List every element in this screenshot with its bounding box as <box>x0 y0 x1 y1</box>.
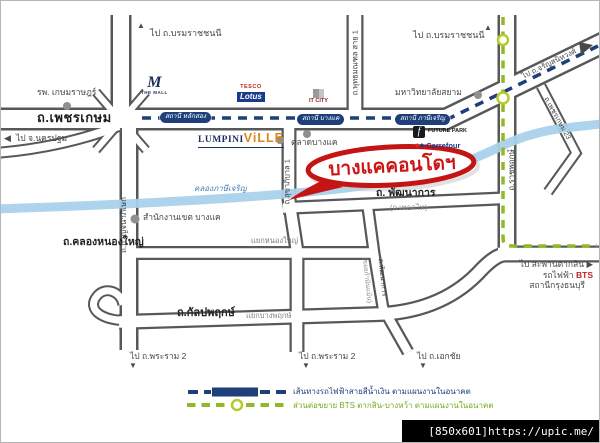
direction-borommaratchachonnani-right: ไป ถ.บรมราชชนนี <box>413 30 485 41</box>
bangkhae-area-map: ▲ ไป ถ.บรมราชชนนี ▲ ไป ถ.บรมราชชนนี ไป ถ… <box>0 0 600 443</box>
district-office-label: สำนักงานเขต บางแค <box>143 212 221 223</box>
up-arrow-icon: ▲ <box>484 24 492 32</box>
watermark: [850x601]https://upic.me/ <box>402 420 599 442</box>
road-label-kanchanaphisek: ถ.กาญจนาภิเษก <box>120 165 128 285</box>
bts-text: BTS <box>576 270 593 280</box>
it-city-logo: IT CITY <box>309 89 328 105</box>
direction-nakhon-pathom: ไป จ.นครปฐม <box>16 133 67 144</box>
road-label-phetkasem: ถ.เพชรเกษม <box>37 110 112 126</box>
building-icon <box>313 89 324 98</box>
direction-taksin-line1: ไป สะพานตากสิน ▶ <box>499 259 593 270</box>
bts-station-ring <box>498 35 508 45</box>
legend-graphics <box>187 388 288 411</box>
canal-label: คลองภาษีเจริญ <box>194 182 247 195</box>
future-park-icon: f <box>413 126 425 138</box>
up-arrow-icon: ▲ <box>137 22 145 30</box>
station-chip-bang-khae: สถานี บางแค <box>297 114 344 125</box>
legend-blue-line-text: เส้นทางรถไฟฟ้าสายสีน้ำเงิน ตามแผนงานในอน… <box>293 385 471 398</box>
road-label-khlong-nong-yai: ถ.คลองหนองใหญ่ <box>63 236 144 249</box>
siam-university-label: มหาวิทยาลัยสยาม <box>395 87 462 98</box>
bang-phruek-intersection-label: แยกบางพฤกษ์ <box>246 311 291 320</box>
kasemrad-hospital-label: รพ. เกษมราษฎร์ <box>37 87 96 98</box>
nong-yai-intersection-label: แยกหนองใหญ่ <box>251 236 298 245</box>
road-label-thoet-thai: (ถ.เทอดไท) <box>390 203 427 212</box>
direction-rama2-left: ไป ถ.พระราม 2 <box>130 351 186 362</box>
road-label-phutthamonthon-sai1: ถ.พุทธมณฑล สาย 1 <box>351 3 359 123</box>
direction-taksin-line3: สถานีกรุงธนบุรี <box>499 280 593 291</box>
bts-station-ring <box>498 93 509 104</box>
future-park-logo: f FUTURE PARK <box>413 126 467 138</box>
bang-khae-market-label: ตลาดบางแค <box>291 137 338 148</box>
station-chip-lak-song: สถานี หลักสอง <box>160 112 211 123</box>
road-label-ratchaphruek: ถ.ราชพฤกษ์ <box>508 110 516 230</box>
down-arrow-icon: ▼ <box>419 362 427 370</box>
left-arrow-icon: ◀ <box>4 134 11 143</box>
the-mall-logo: M THE MALL <box>141 75 168 96</box>
carrefour-icon: ◆◆ <box>415 143 424 149</box>
road-label-sukhaphiban1: ถ.สุขาภิบาล 1 <box>283 122 291 242</box>
the-mall-m-icon: M <box>141 75 168 91</box>
direction-borommaratchachonnani-left: ไป ถ.บรมราชชนนี <box>150 28 222 39</box>
direction-taksin-block: ไป สะพานตากสิน ▶ รถไฟฟ้า BTS สถานีกรุงธน… <box>499 259 593 291</box>
tesco-lotus-logo: TESCO Lotus <box>237 85 265 102</box>
down-arrow-icon: ▼ <box>129 362 137 370</box>
right-arrow-icon: ▶ <box>586 259 593 269</box>
down-arrow-icon: ▼ <box>302 362 310 370</box>
direction-taksin-line2: รถไฟฟ้า BTS <box>499 270 593 281</box>
road-label-phatthanakan: ถ. พัฒนาการ <box>376 187 436 200</box>
road-label-kanlapaphruek: ถ.กัลปพฤกษ์ <box>177 307 235 321</box>
lumpini-ville-logo: LUMPINIViLLE <box>198 130 284 148</box>
station-chip-phasi-charoen: สถานี ภาษีเจริญ <box>395 114 450 125</box>
legend-green-line-text: ส่วนต่อขยาย BTS ตากสิน-บางหว้า ตามแผนงาน… <box>293 399 494 412</box>
